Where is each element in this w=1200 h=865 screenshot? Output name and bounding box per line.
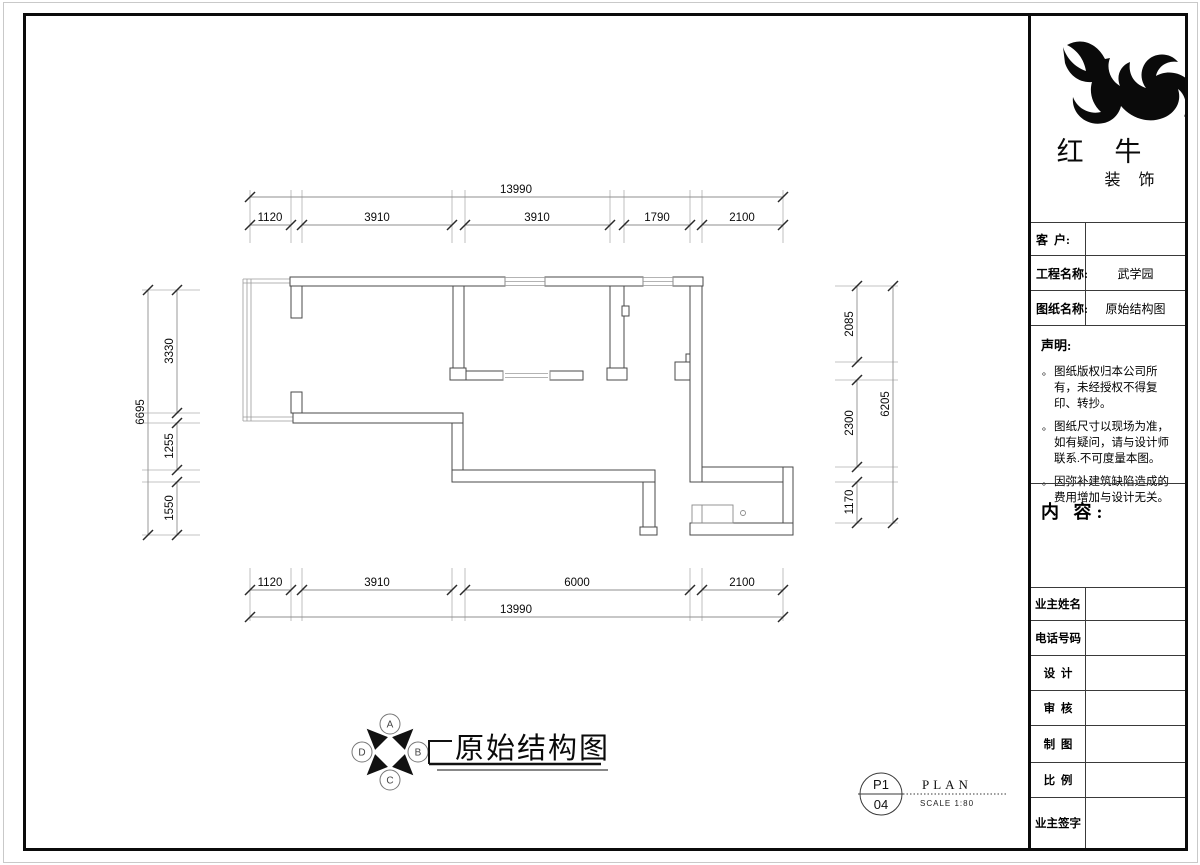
owner-name-row: 业主姓名 — [1031, 587, 1185, 620]
designer-label: 设 计 — [1031, 656, 1086, 690]
drawing-title-block: 原始结构图 — [429, 732, 610, 770]
floor-drain-icon — [741, 511, 746, 516]
sheet-name-label: 图纸名称: — [1031, 291, 1086, 325]
extension-lines — [142, 190, 898, 621]
owner-sign-label: 业主签字 — [1031, 798, 1086, 848]
dim-right-seg2: 2300 — [844, 410, 856, 436]
floor-plan-canvas: 13990 1120 3910 3910 1790 2100 1120 3910… — [0, 0, 1200, 865]
statement-heading: 声明: — [1041, 338, 1179, 354]
drawing-sheet: 13990 1120 3910 3910 1790 2100 1120 3910… — [0, 0, 1200, 865]
sheet-scale-label: SCALE 1:80 — [920, 799, 974, 808]
statement-item: 。 图纸尺寸以现场为准，如有疑问，请与设计师联系.不可度量本图。 — [1041, 419, 1179, 467]
sheet-number-top: P1 — [873, 777, 889, 792]
dim-bottom-seg3: 6000 — [564, 577, 590, 589]
marker-letter-c: C — [386, 776, 393, 787]
balcony-window-lines — [243, 279, 293, 421]
statement-text-2: 图纸尺寸以现场为准，如有疑问，请与设计师联系.不可度量本图。 — [1054, 421, 1169, 465]
dim-top-seg4: 1790 — [644, 212, 670, 224]
scale-row: 比 例 — [1031, 762, 1185, 797]
marker-letter-b: B — [415, 748, 422, 759]
dim-bottom-overall: 13990 — [500, 604, 532, 616]
dimension-lines — [148, 197, 893, 617]
sheet-number-bottom: 04 — [874, 797, 888, 812]
dim-top-seg5: 2100 — [729, 212, 755, 224]
project-name-row: 工程名称: 武学园 — [1031, 255, 1185, 290]
brand-name: 红 牛 — [1057, 137, 1154, 167]
phone-value — [1086, 621, 1185, 655]
client-label: 客 户: — [1031, 223, 1086, 255]
designer-value — [1086, 656, 1185, 690]
phone-row: 电话号码 — [1031, 620, 1185, 655]
dim-bottom-seg1: 1120 — [258, 577, 283, 589]
bullet-icon: 。 — [1042, 365, 1052, 381]
brand-subname: 装 饰 — [1104, 171, 1161, 189]
owner-sign-value — [1086, 798, 1185, 848]
auditor-row: 审 核 — [1031, 690, 1185, 725]
sheet-name-value: 原始结构图 — [1086, 291, 1185, 325]
auditor-label: 审 核 — [1031, 691, 1086, 725]
dim-top-seg3: 3910 — [524, 212, 550, 224]
scale-label: 比 例 — [1031, 763, 1086, 797]
dim-right-seg3: 1170 — [844, 490, 856, 515]
owner-name-label: 业主姓名 — [1031, 588, 1086, 620]
dimension-ticks — [143, 192, 898, 622]
drawing-title: 原始结构图 — [455, 732, 610, 765]
dim-left-seg1: 3330 — [164, 338, 176, 364]
dim-left-seg2: 1255 — [164, 433, 176, 459]
designer-row: 设 计 — [1031, 655, 1185, 690]
owner-sign-row: 业主签字 — [1031, 797, 1185, 848]
company-logo: 红 牛 装 饰 — [1031, 13, 1185, 222]
drafter-label: 制 图 — [1031, 726, 1086, 762]
content-heading: 内 容: — [1031, 484, 1185, 524]
client-value — [1086, 223, 1185, 255]
dim-top-seg2: 3910 — [364, 212, 390, 224]
bullet-icon: 。 — [1042, 420, 1052, 436]
dimension-labels: 13990 1120 3910 3910 1790 2100 1120 3910… — [135, 184, 892, 616]
sheet-stamp: P1 04 PLAN SCALE 1:80 — [858, 773, 1006, 815]
client-row: 客 户: — [1031, 222, 1185, 255]
statement-item: 。 图纸版权归本公司所有，未经授权不得复印、转抄。 — [1041, 364, 1179, 412]
phone-label: 电话号码 — [1031, 621, 1086, 655]
sheet-type-label: PLAN — [922, 777, 972, 792]
dim-bottom-seg2: 3910 — [364, 577, 390, 589]
bull-icon — [1063, 41, 1185, 123]
owner-name-value — [1086, 588, 1185, 620]
drafter-row: 制 图 — [1031, 725, 1185, 762]
auditor-value — [1086, 691, 1185, 725]
window-lines — [503, 277, 673, 380]
bathroom-fixture — [692, 505, 746, 523]
sheet-name-row: 图纸名称: 原始结构图 — [1031, 290, 1185, 325]
dim-right-overall: 6205 — [880, 391, 892, 417]
walls — [290, 277, 793, 535]
dim-left-seg3: 1550 — [164, 495, 176, 521]
dim-top-seg1: 1120 — [258, 212, 283, 224]
title-block: 红 牛 装 饰 客 户: 工程名称: 武学园 图纸名称: 原始结构图 声明: 。… — [1028, 13, 1185, 848]
project-name-value: 武学园 — [1086, 256, 1185, 290]
content-section: 内 容: — [1031, 483, 1185, 587]
dim-bottom-seg4: 2100 — [729, 577, 755, 589]
project-name-label: 工程名称: — [1031, 256, 1086, 290]
dim-left-overall: 6695 — [135, 399, 147, 425]
drafter-value — [1086, 726, 1185, 762]
statement-text-1: 图纸版权归本公司所有，未经授权不得复印、转抄。 — [1054, 366, 1158, 410]
scale-value — [1086, 763, 1185, 797]
logo-section: 红 牛 装 饰 — [1031, 13, 1185, 222]
dim-top-overall: 13990 — [500, 184, 532, 196]
dim-right-seg1: 2085 — [844, 311, 856, 337]
marker-letter-a: A — [387, 720, 394, 731]
marker-letter-d: D — [358, 748, 365, 759]
statement-section: 声明: 。 图纸版权归本公司所有，未经授权不得复印、转抄。 。 图纸尺寸以现场为… — [1031, 325, 1185, 483]
elevation-marker-icon: A B C D — [352, 714, 428, 790]
